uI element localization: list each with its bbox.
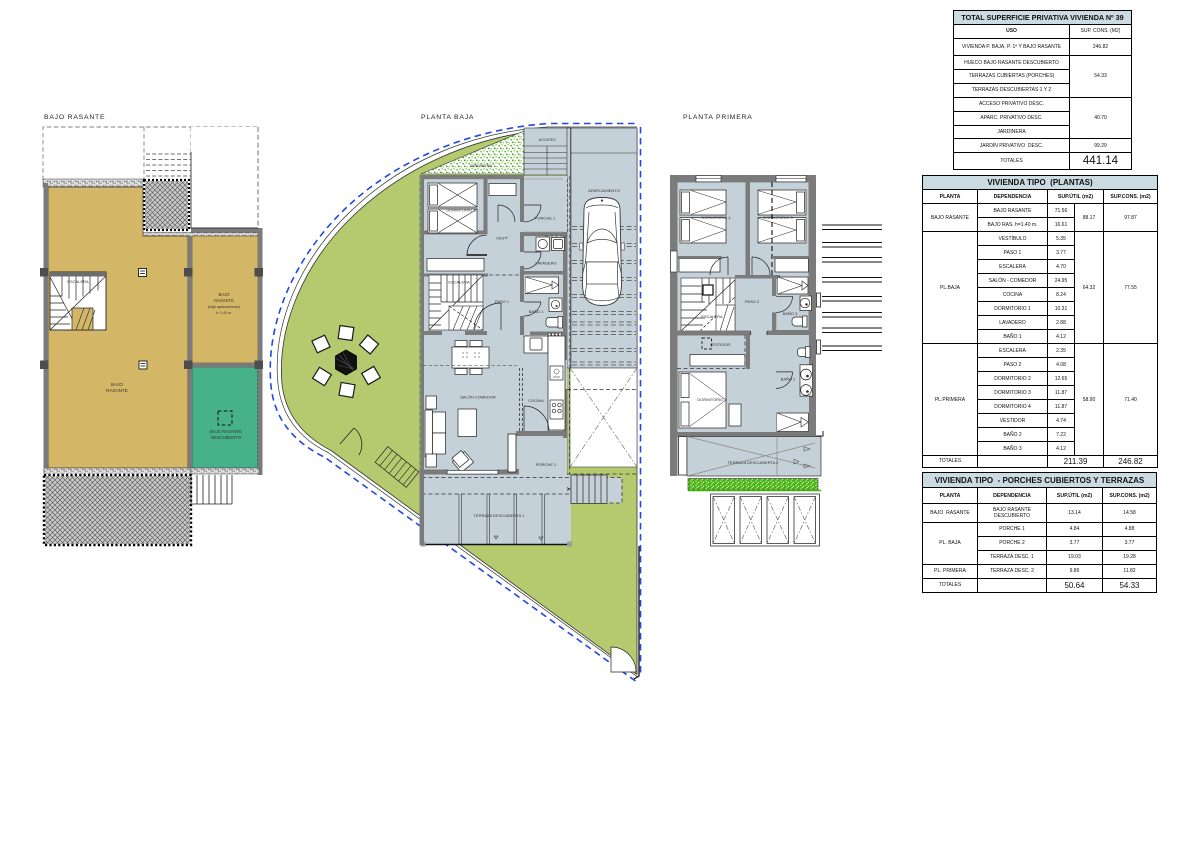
svg-text:RASANTE: RASANTE bbox=[214, 298, 234, 303]
svg-text:BAÑO 3: BAÑO 3 bbox=[783, 311, 798, 316]
svg-text:ESCALERA: ESCALERA bbox=[701, 314, 723, 319]
svg-text:APARCAMIENTO: APARCAMIENTO bbox=[588, 188, 620, 193]
svg-text:ESCALERA: ESCALERA bbox=[448, 280, 470, 285]
svg-text:BAJO: BAJO bbox=[219, 292, 231, 297]
svg-text:VESTº: VESTº bbox=[496, 236, 508, 241]
svg-text:PORCHE 2: PORCHE 2 bbox=[536, 462, 557, 467]
svg-text:DORMITORIO 1: DORMITORIO 1 bbox=[446, 208, 476, 213]
svg-text:(bajo aparcamiento): (bajo aparcamiento) bbox=[208, 305, 240, 309]
svg-text:TERRAZA DESCUBIERTA 1: TERRAZA DESCUBIERTA 1 bbox=[474, 513, 526, 518]
svg-text:DESCUBIERTO: DESCUBIERTO bbox=[211, 435, 242, 440]
svg-text:PORCHE 1: PORCHE 1 bbox=[535, 216, 556, 221]
svg-text:ACCESO: ACCESO bbox=[539, 137, 556, 142]
svg-text:BAÑO 1: BAÑO 1 bbox=[529, 309, 544, 314]
svg-text:DORMITORIO 3: DORMITORIO 3 bbox=[763, 215, 793, 220]
svg-text:COCINA: COCINA bbox=[528, 398, 544, 403]
svg-text:SALÓN COMEDOR: SALÓN COMEDOR bbox=[460, 395, 496, 400]
svg-text:h: 1,40 m.: h: 1,40 m. bbox=[216, 311, 232, 315]
svg-text:PLANTA BAJA: PLANTA BAJA bbox=[421, 114, 474, 121]
svg-text:RASANTE: RASANTE bbox=[106, 388, 128, 393]
svg-text:BAJO: BAJO bbox=[111, 382, 123, 387]
svg-text:PLANTA PRIMERA: PLANTA PRIMERA bbox=[683, 114, 753, 121]
svg-text:BAJO RASANTE: BAJO RASANTE bbox=[210, 429, 242, 434]
svg-text:BAJO RASANTE: BAJO RASANTE bbox=[44, 114, 105, 121]
svg-text:DORMITORIO 2: DORMITORIO 2 bbox=[697, 397, 727, 402]
svg-text:ESCALERA: ESCALERA bbox=[67, 279, 89, 284]
svg-text:BAÑO 2: BAÑO 2 bbox=[781, 377, 796, 382]
svg-text:PASO 2: PASO 2 bbox=[745, 299, 760, 304]
svg-text:JARDINERA: JARDINERA bbox=[470, 163, 493, 168]
svg-text:TERRAZA DESCUBIERTA 2: TERRAZA DESCUBIERTA 2 bbox=[728, 460, 780, 465]
svg-text:DORMITORIO 4: DORMITORIO 4 bbox=[701, 215, 731, 220]
svg-text:VESTIDOR: VESTIDOR bbox=[710, 342, 731, 347]
